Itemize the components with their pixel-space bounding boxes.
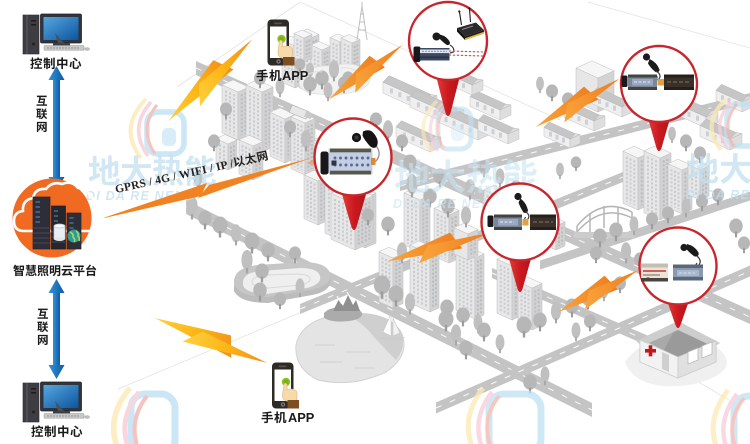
svg-text:APP: APP: [282, 68, 309, 83]
svg-text:DI DA RE: DI DA RE: [686, 188, 750, 202]
svg-text:APP: APP: [288, 410, 315, 425]
